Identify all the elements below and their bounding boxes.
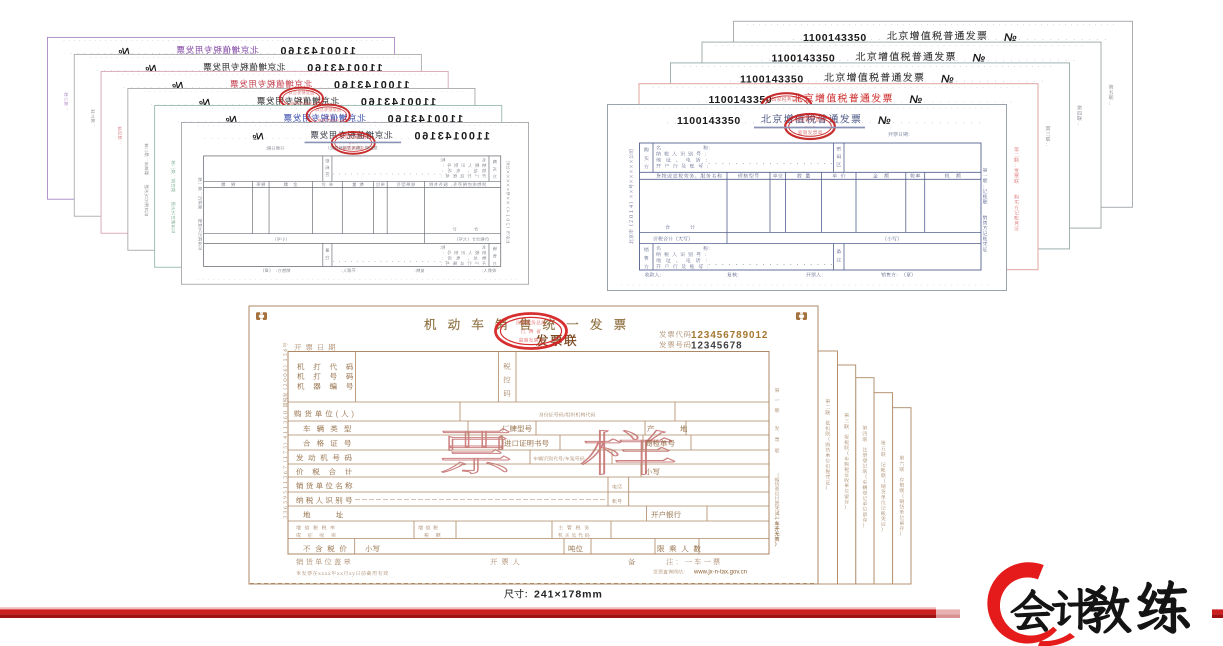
svg-text:www.jx-n-tax.gov.cn: www.jx-n-tax.gov.cn xyxy=(693,570,747,576)
svg-text:123456789012: 123456789012 xyxy=(691,330,768,341)
svg-text:№: № xyxy=(253,131,264,142)
svg-text:1100143350: 1100143350 xyxy=(677,115,741,127)
svg-text:№: № xyxy=(878,115,891,127)
svg-text:1100143160: 1100143160 xyxy=(413,130,490,142)
svg-text:12345678: 12345678 xyxy=(691,341,743,352)
svg-text:241×178mm: 241×178mm xyxy=(534,589,603,601)
